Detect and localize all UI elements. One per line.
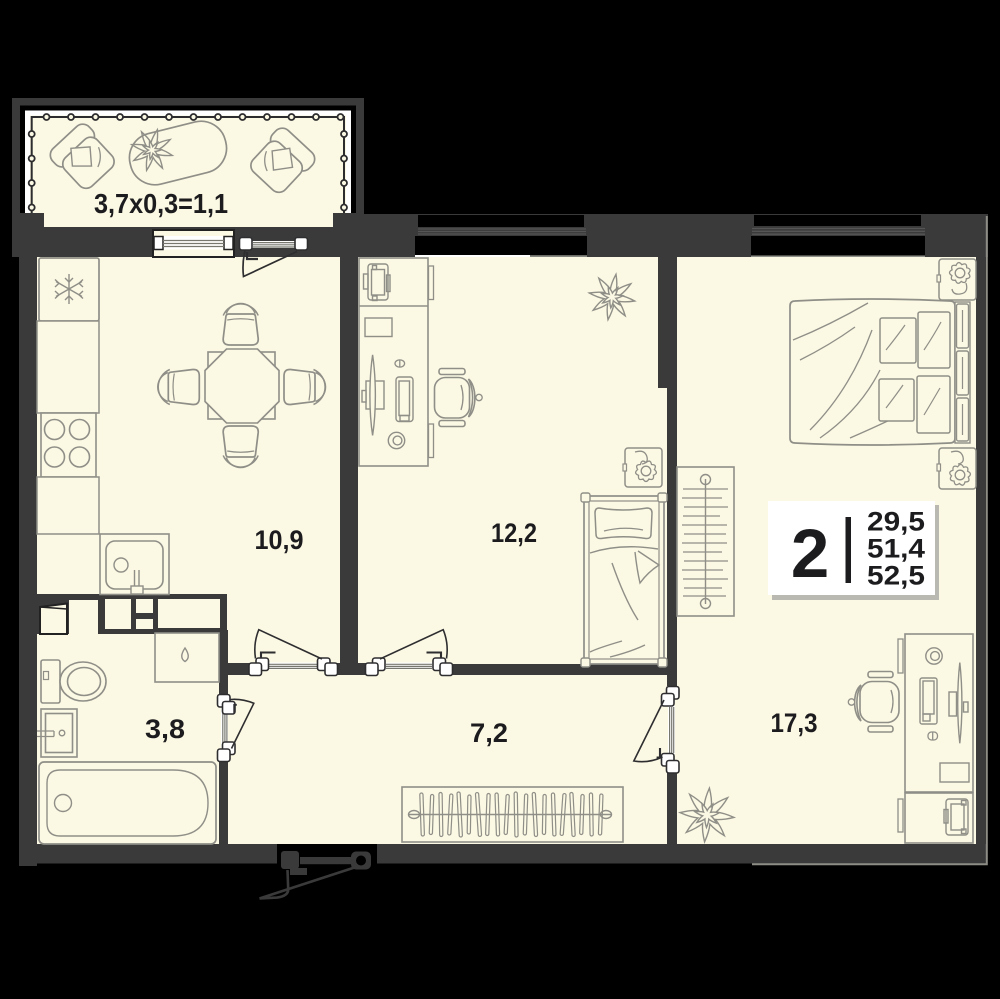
svg-text:3,7х0,3=1,1: 3,7х0,3=1,1 (94, 188, 228, 219)
svg-text:29,5: 29,5 (867, 507, 925, 537)
svg-text:52,5: 52,5 (867, 561, 925, 591)
svg-text:2: 2 (791, 515, 829, 592)
svg-text:3,8: 3,8 (145, 714, 185, 744)
svg-text:51,4: 51,4 (867, 534, 925, 564)
svg-text:7,2: 7,2 (470, 718, 508, 748)
svg-text:10,9: 10,9 (255, 525, 304, 555)
svg-text:12,2: 12,2 (491, 518, 537, 548)
svg-text:17,3: 17,3 (771, 708, 818, 738)
